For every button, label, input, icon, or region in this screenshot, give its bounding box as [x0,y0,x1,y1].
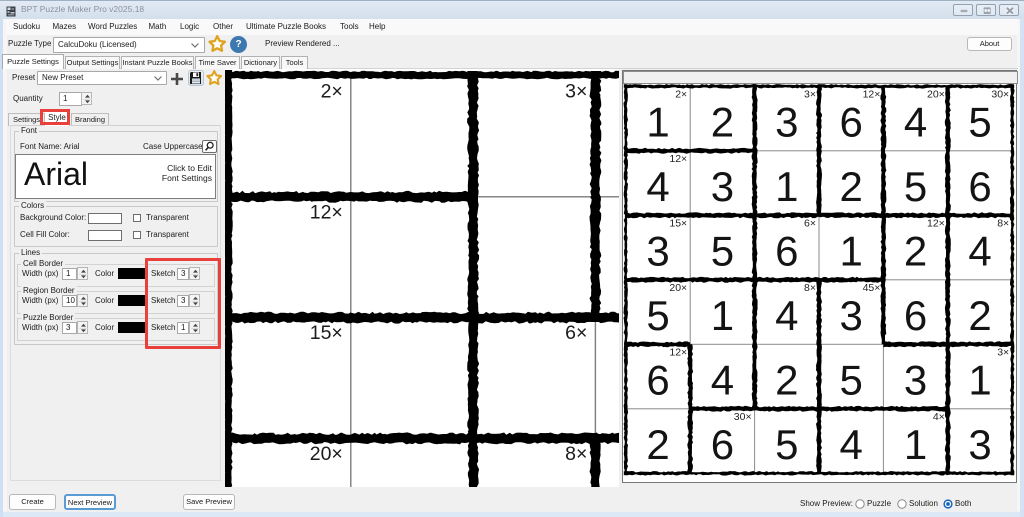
svg-text:6: 6 [904,292,927,339]
svg-text:20×: 20× [669,282,687,294]
svg-text:4: 4 [904,98,927,145]
svg-text:6×: 6× [804,217,816,229]
svg-text:1: 1 [711,292,734,339]
svg-text:3×: 3× [565,81,587,103]
svg-text:2: 2 [775,356,798,403]
svg-text:3: 3 [711,163,734,210]
svg-text:5: 5 [775,421,798,468]
svg-text:3: 3 [840,292,863,339]
svg-text:5: 5 [904,163,927,210]
svg-text:3: 3 [646,227,669,274]
svg-text:20×: 20× [927,88,945,100]
svg-text:12×: 12× [669,346,687,358]
svg-text:8×: 8× [804,282,816,294]
svg-text:3: 3 [968,421,991,468]
svg-text:8×: 8× [565,443,587,465]
svg-text:30×: 30× [991,88,1009,100]
svg-text:15×: 15× [669,217,687,229]
svg-text:12×: 12× [863,88,881,100]
svg-text:4: 4 [840,421,863,468]
svg-text:6: 6 [968,163,991,210]
svg-text:6×: 6× [565,322,587,344]
svg-text:4: 4 [646,163,669,210]
svg-text:12×: 12× [927,217,945,229]
svg-text:2×: 2× [321,81,343,103]
svg-text:2×: 2× [675,88,687,100]
svg-text:1: 1 [968,356,991,403]
svg-text:5: 5 [711,227,734,274]
svg-text:2: 2 [646,421,669,468]
svg-text:5: 5 [968,98,991,145]
svg-text:4: 4 [711,356,734,403]
svg-text:12×: 12× [669,153,687,165]
svg-text:6: 6 [711,421,734,468]
svg-text:15×: 15× [310,322,343,344]
svg-text:6: 6 [646,356,669,403]
svg-text:30×: 30× [734,411,752,423]
svg-text:12×: 12× [310,201,343,223]
svg-text:3×: 3× [997,346,1009,358]
svg-text:3: 3 [904,356,927,403]
svg-text:4×: 4× [933,411,945,423]
svg-text:3×: 3× [804,88,816,100]
svg-text:5: 5 [646,292,669,339]
svg-text:20×: 20× [310,443,343,465]
svg-text:6: 6 [775,227,798,274]
svg-text:8×: 8× [997,217,1009,229]
svg-text:1: 1 [646,98,669,145]
svg-text:4: 4 [775,292,798,339]
svg-text:2: 2 [711,98,734,145]
svg-text:2: 2 [840,163,863,210]
svg-text:3: 3 [775,98,798,145]
svg-text:5: 5 [840,356,863,403]
svg-text:6: 6 [840,98,863,145]
svg-text:1: 1 [904,421,927,468]
svg-text:4: 4 [968,227,991,274]
svg-text:2: 2 [968,292,991,339]
svg-text:1: 1 [775,163,798,210]
svg-text:2: 2 [904,227,927,274]
svg-text:1: 1 [840,227,863,274]
svg-text:45×: 45× [863,282,881,294]
